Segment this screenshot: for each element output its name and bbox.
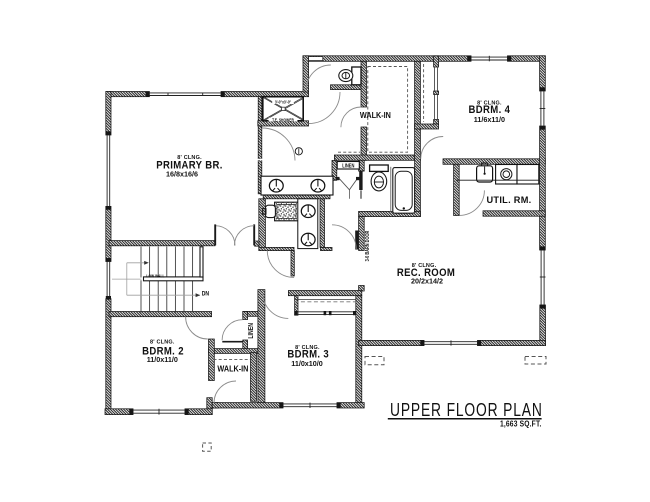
- svg-text:WALK-IN: WALK-IN: [360, 111, 391, 120]
- svg-text:1,663 SQ.FT.: 1,663 SQ.FT.: [500, 419, 542, 429]
- svg-text:UPPER FLOOR PLAN: UPPER FLOOR PLAN: [390, 400, 543, 420]
- svg-text:LINEN: LINEN: [247, 322, 255, 338]
- svg-text:3'-0"x3'-0": 3'-0"x3'-0": [275, 100, 291, 104]
- svg-text:WALK-IN: WALK-IN: [217, 364, 248, 373]
- svg-text:LOW WALL: LOW WALL: [146, 274, 165, 278]
- svg-text:20/2x14/2: 20/2x14/2: [411, 276, 443, 285]
- svg-text:8' CLNG.: 8' CLNG.: [150, 340, 175, 346]
- svg-text:T.E. SHOWER: T.E. SHOWER: [272, 118, 294, 122]
- svg-text:16/8x16/6: 16/8x16/6: [166, 170, 198, 179]
- svg-text:11/0x11/0: 11/0x11/0: [147, 355, 178, 364]
- svg-text:DN: DN: [202, 291, 209, 298]
- svg-text:11/6x11/0: 11/6x11/0: [474, 115, 505, 124]
- svg-text:LINEN: LINEN: [342, 163, 355, 170]
- svg-text:3-0 BARN DOOR: 3-0 BARN DOOR: [364, 230, 370, 261]
- svg-text:11/0x10/0: 11/0x10/0: [291, 359, 323, 368]
- svg-text:UTIL. RM.: UTIL. RM.: [486, 195, 531, 205]
